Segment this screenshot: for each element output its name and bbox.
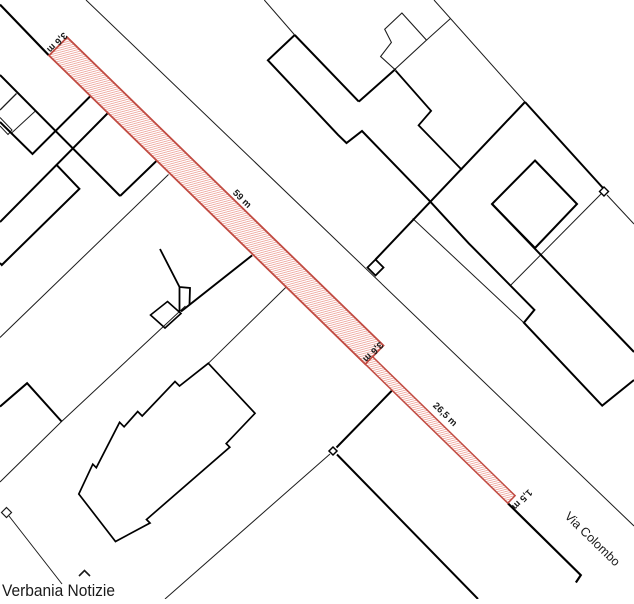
svg-text:Verbania Notizie: Verbania Notizie bbox=[2, 582, 115, 599]
